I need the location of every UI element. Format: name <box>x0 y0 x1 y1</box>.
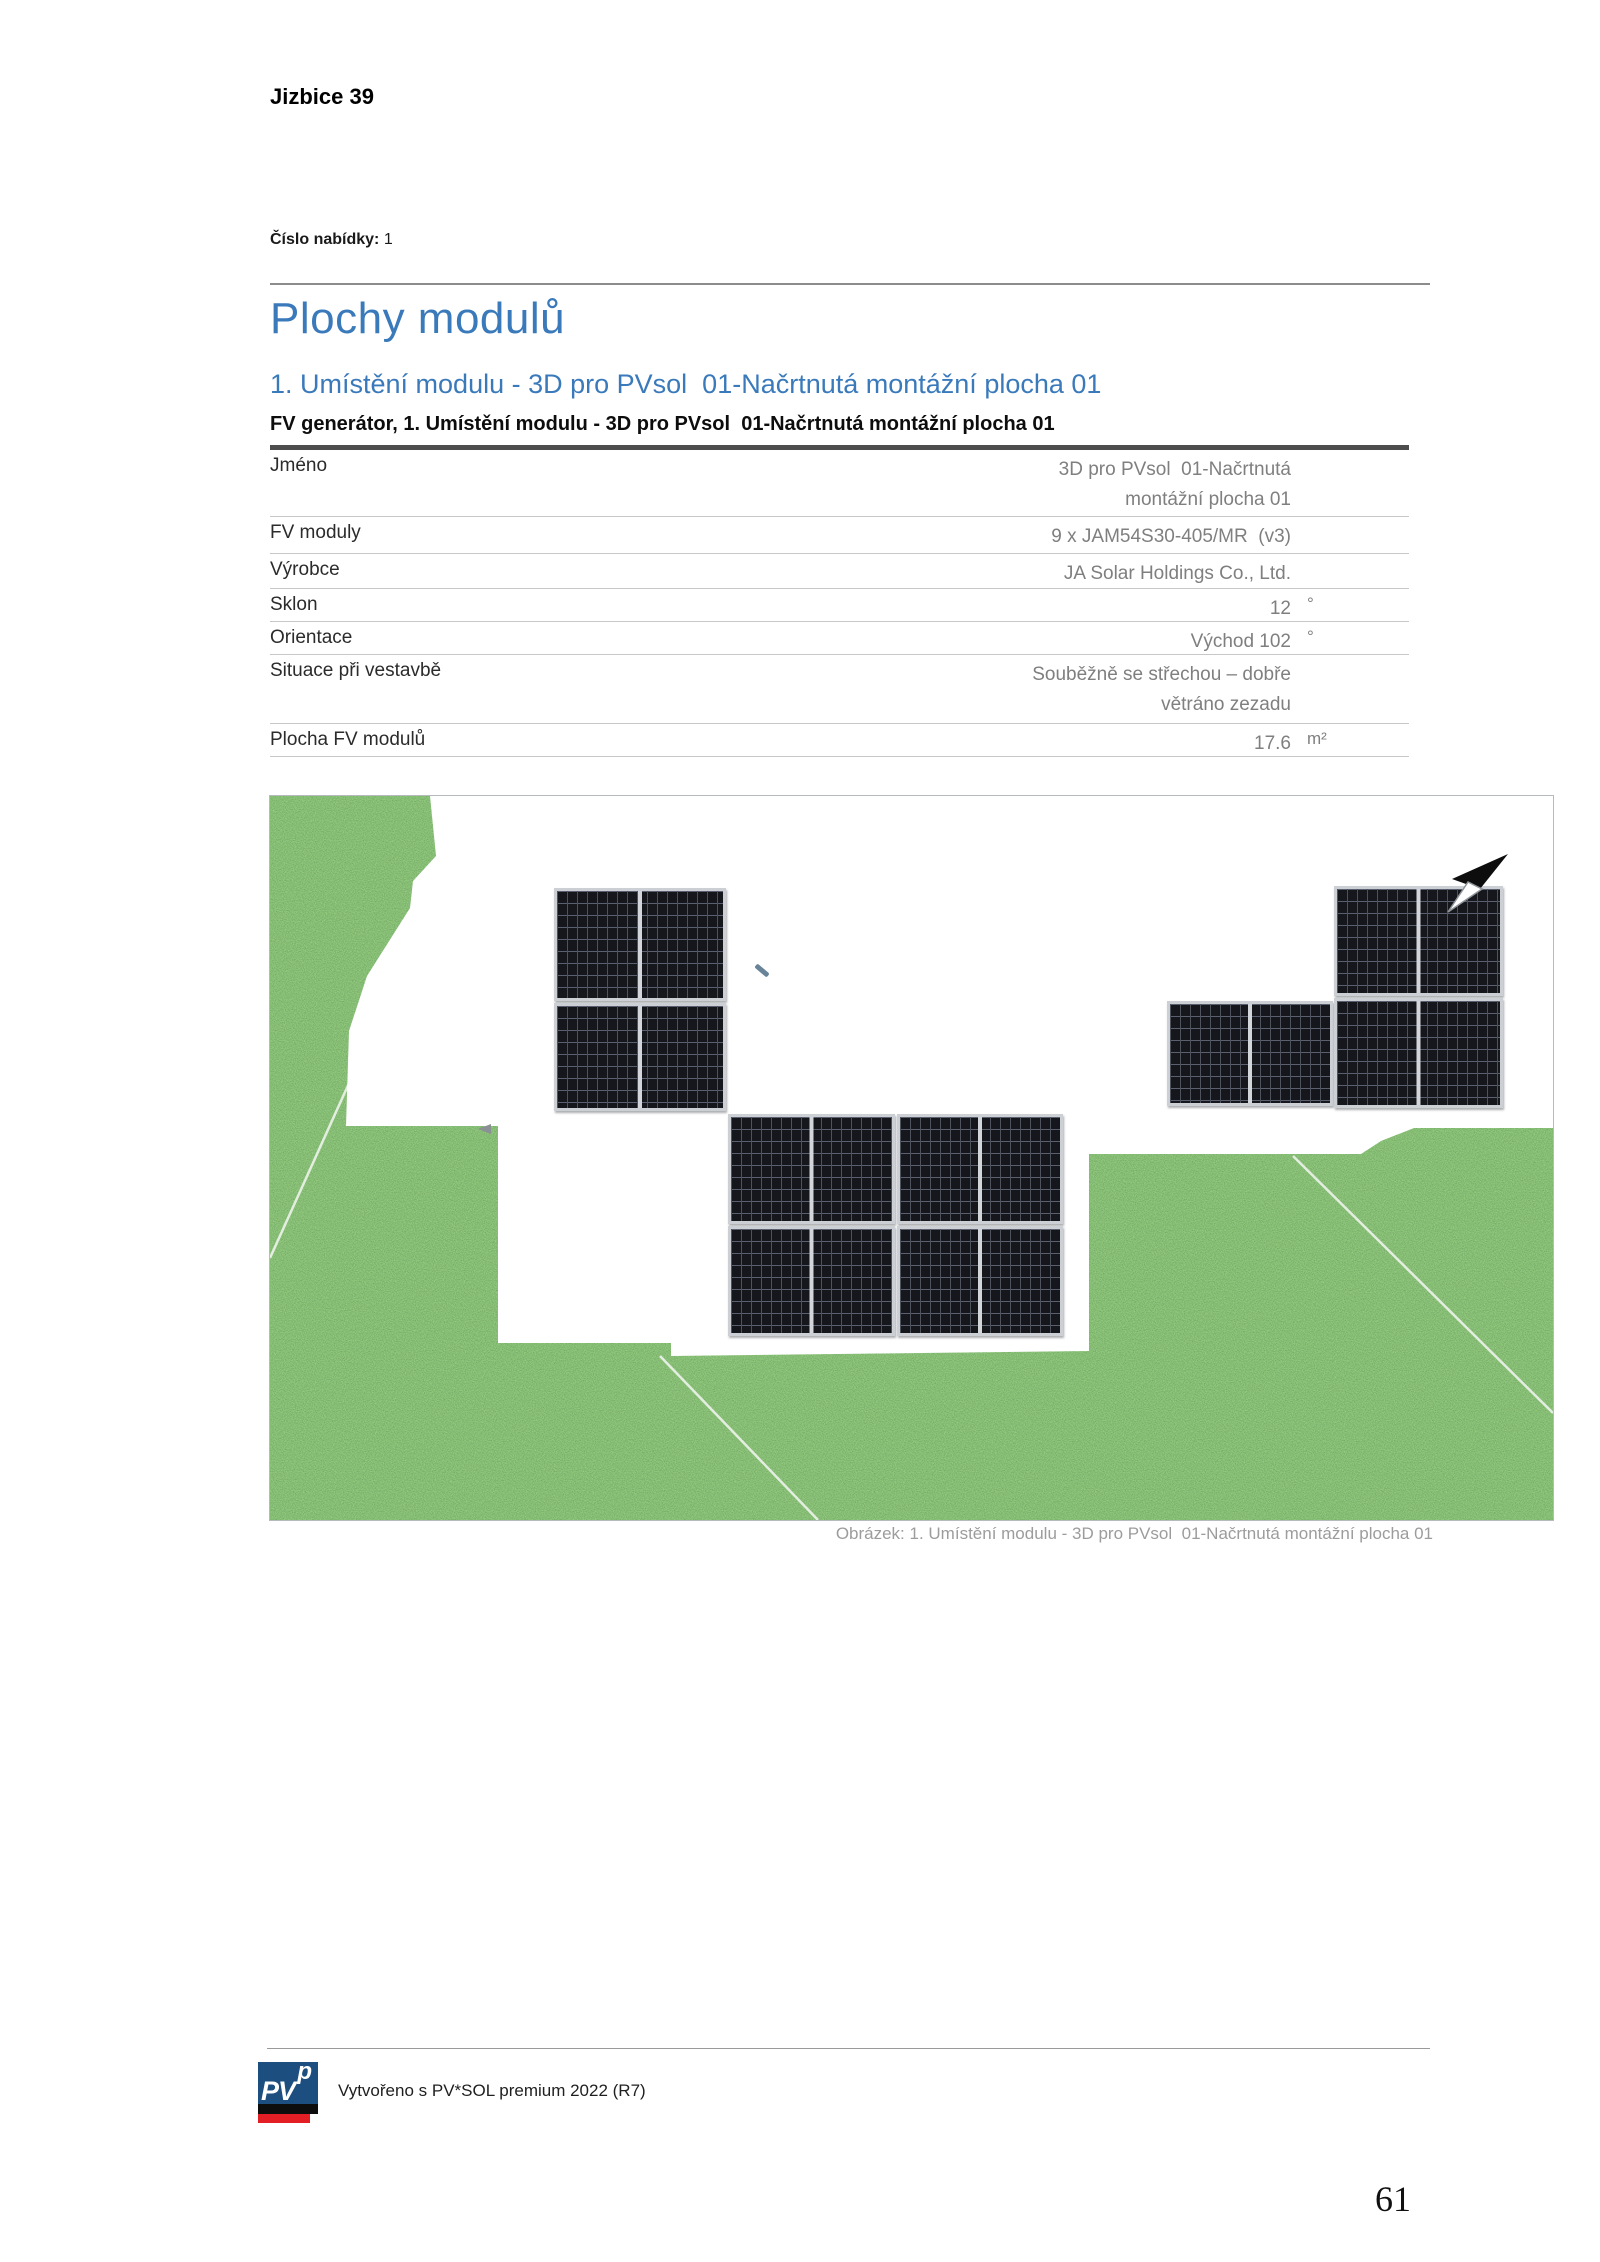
row-unit: ° <box>1291 627 1409 647</box>
row-value: JA Solar Holdings Co., Ltd. <box>690 559 1291 589</box>
table-row: Výrobce JA Solar Holdings Co., Ltd. <box>270 554 1409 589</box>
row-unit: m² <box>1291 729 1409 749</box>
north-arrow-icon <box>1430 852 1510 914</box>
table-row: Orientace Východ 102 ° <box>270 622 1409 655</box>
row-value: Východ 102 <box>690 627 1291 657</box>
row-label: Plocha FV modulů <box>270 729 690 751</box>
table-row: Sklon 12 ° <box>270 589 1409 622</box>
row-label: Výrobce <box>270 559 690 581</box>
row-value: 3D pro PVsol 01-Načrtnutá montážní ploch… <box>690 455 1291 516</box>
pv-module <box>728 1226 895 1336</box>
row-label: FV moduly <box>270 522 690 544</box>
table-row: Situace při vestavbě Souběžně se střecho… <box>270 655 1409 724</box>
offer-number-label: Číslo nabídky: <box>270 231 379 248</box>
pv-module <box>897 1114 1063 1224</box>
row-label: Situace při vestavbě <box>270 660 690 682</box>
pv-module <box>1334 998 1503 1108</box>
page-title: Plochy modulů <box>270 294 565 344</box>
table-row: Plocha FV modulů 17.6 m² <box>270 724 1409 757</box>
section-subtitle: 1. Umístění modulu - 3D pro PVsol 01-Nač… <box>270 369 1101 400</box>
row-label: Orientace <box>270 627 690 649</box>
generator-table: Jméno 3D pro PVsol 01-Načrtnutá montážní… <box>270 445 1409 757</box>
row-value: 17.6 <box>690 729 1291 759</box>
row-value: 12 <box>690 594 1291 624</box>
roof-3d-visualization <box>269 795 1554 1521</box>
pv-module <box>554 1003 726 1111</box>
pvsol-logo-red-band <box>258 2114 310 2123</box>
offer-number-value-text: 1 <box>384 231 393 248</box>
report-page: { "page": { "project": "Jizbice 39", "of… <box>0 0 1600 2262</box>
roof-object-marker <box>478 1124 491 1134</box>
table-row: FV moduly 9 x JAM54S30-405/MR (v3) <box>270 517 1409 554</box>
pvsol-logo-text: PV <box>261 2076 295 2107</box>
pv-module <box>728 1114 895 1224</box>
figure-caption: Obrázek: 1. Umístění modulu - 3D pro PVs… <box>270 1524 1433 1544</box>
pvsol-logo: PV p <box>258 2062 318 2123</box>
pv-module <box>1167 1001 1333 1106</box>
header-divider <box>270 283 1430 285</box>
footer-divider <box>267 2048 1430 2049</box>
row-label: Jméno <box>270 455 690 477</box>
table-row: Jméno 3D pro PVsol 01-Načrtnutá montážní… <box>270 450 1409 517</box>
row-label: Sklon <box>270 594 690 616</box>
project-title: Jizbice 39 <box>270 84 374 110</box>
footer-credit: Vytvořeno s PV*SOL premium 2022 (R7) <box>338 2081 646 2101</box>
row-unit: ° <box>1291 594 1409 614</box>
pv-module <box>554 888 726 1001</box>
offer-number-line: Číslo nabídky: 1 <box>270 231 393 249</box>
row-value: 9 x JAM54S30-405/MR (v3) <box>690 522 1291 552</box>
row-value: Souběžně se střechou – dobře větráno zez… <box>690 660 1291 721</box>
pvsol-logo-sup-text: p <box>297 2058 312 2086</box>
page-number: 61 <box>1375 2178 1411 2220</box>
table-title: FV generátor, 1. Umístění modulu - 3D pr… <box>270 413 1055 436</box>
pv-module <box>897 1226 1063 1336</box>
